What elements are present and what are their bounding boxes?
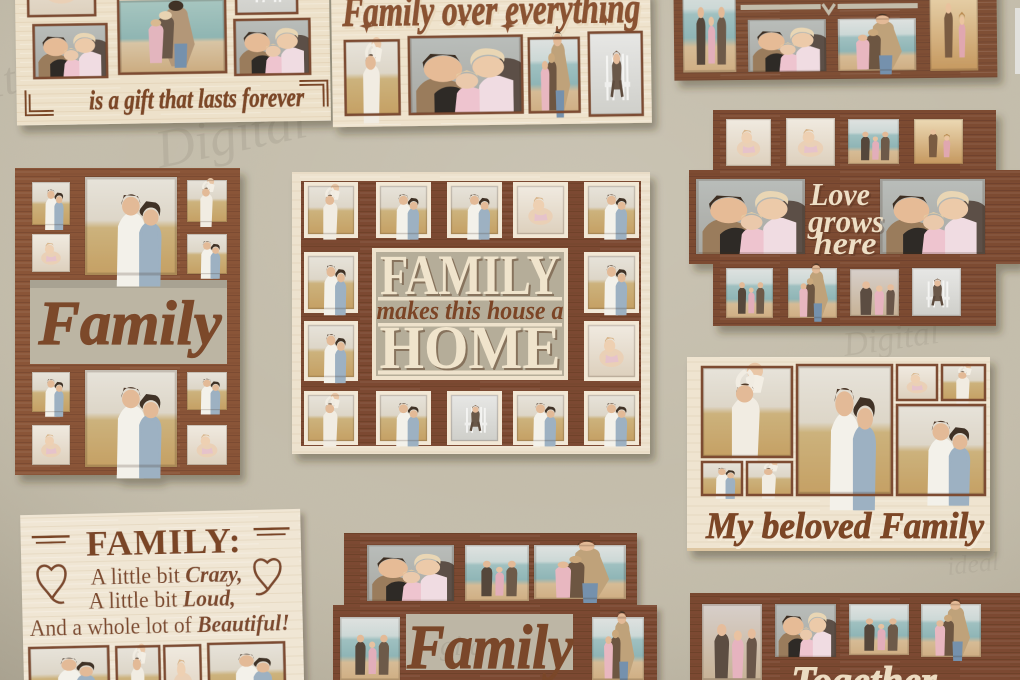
- svg-text:My beloved Family: My beloved Family: [705, 506, 984, 547]
- svg-text:A little bit Loud,: A little bit Loud,: [88, 585, 236, 613]
- svg-text:Family over everything: Family over everything: [341, 0, 640, 36]
- svg-text:FAMILY:: FAMILY:: [86, 520, 243, 564]
- svg-text:Family: Family: [406, 614, 573, 680]
- svg-text:is a gift that lasts forever: is a gift that lasts forever: [89, 82, 305, 115]
- svg-text:Family: Family: [37, 290, 221, 358]
- svg-text:ideal: ideal: [946, 547, 1001, 581]
- svg-text:here: here: [814, 225, 877, 261]
- svg-text:Together: Together: [791, 658, 937, 680]
